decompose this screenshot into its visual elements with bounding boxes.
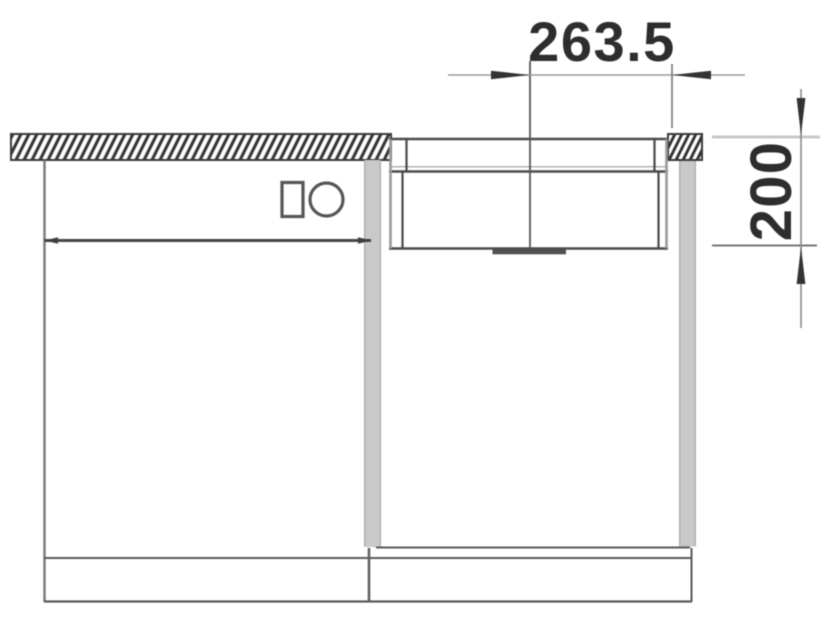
svg-text:200: 200 bbox=[739, 141, 804, 241]
svg-text:263.5: 263.5 bbox=[528, 10, 676, 73]
